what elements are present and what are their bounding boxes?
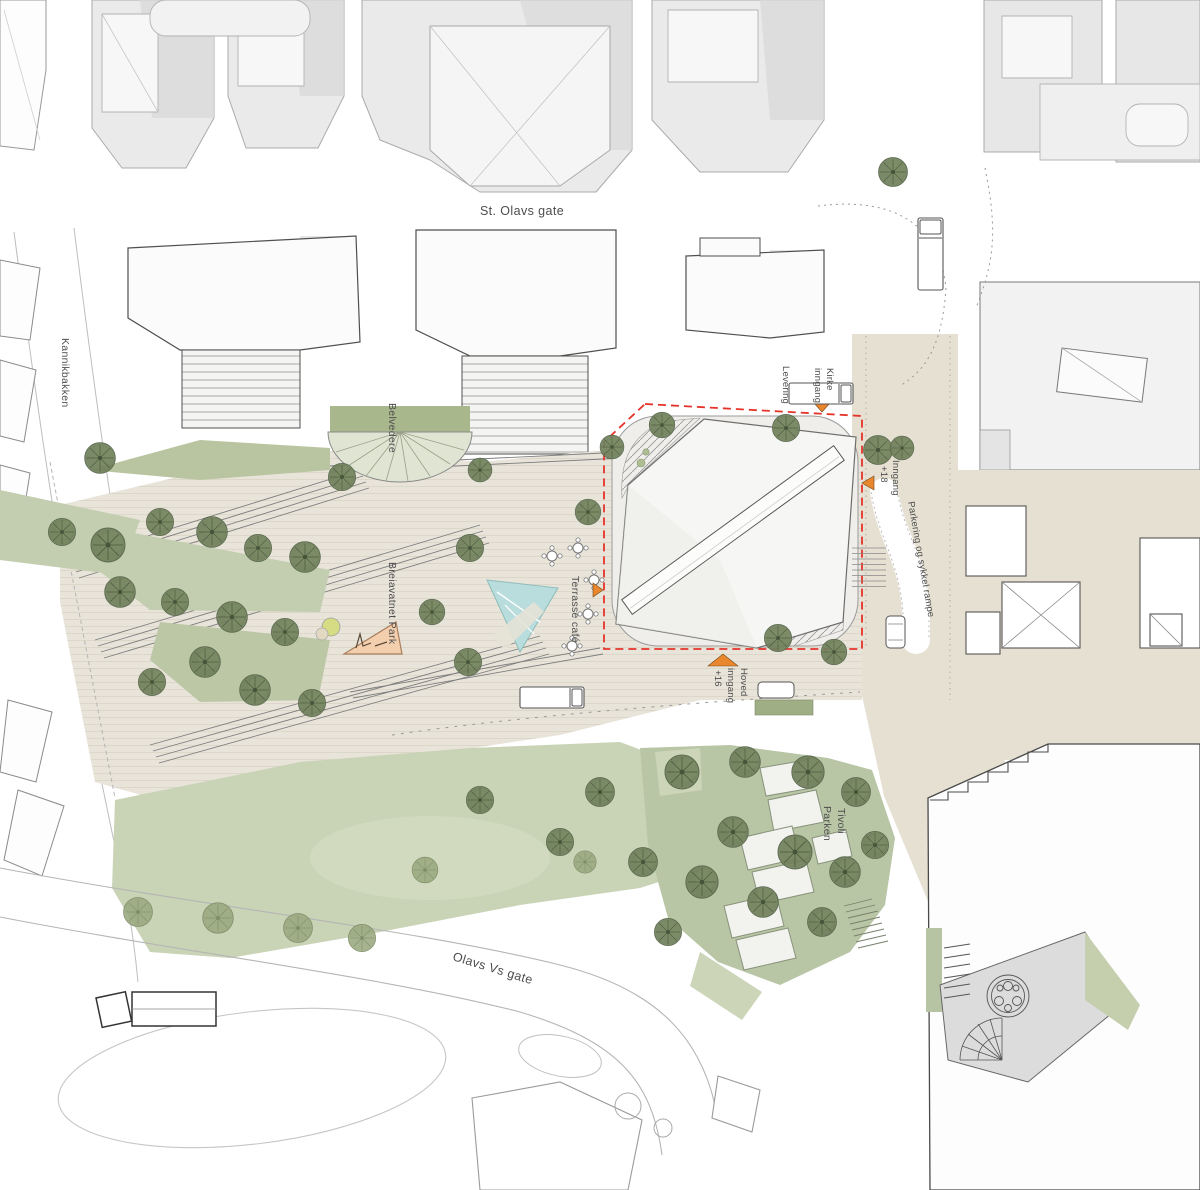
- label-tivoli-parken-1: Tivoli: [835, 808, 847, 834]
- tree-icon: [842, 778, 871, 807]
- tree-icon: [808, 908, 837, 937]
- label-breiavatnet-park: Breiavatnet Park: [386, 562, 398, 645]
- site-plan-page: St. Olavs gate Kannikbakken Belvedere Br…: [0, 0, 1200, 1190]
- tree-icon: [85, 443, 116, 474]
- tree-icon: [730, 747, 761, 778]
- tree-icon: [546, 828, 573, 855]
- label-levering: Levering: [780, 366, 791, 404]
- context-building-right: [980, 282, 1200, 470]
- tree-icon: [91, 528, 125, 562]
- tree-icon: [298, 689, 325, 716]
- tree-icon: [290, 542, 321, 573]
- tree-icon: [456, 534, 483, 561]
- tree-icon: [686, 866, 718, 898]
- label-belvedere: Belvedere: [386, 403, 398, 453]
- tree-icon: [217, 602, 248, 633]
- tree-icon: [244, 534, 271, 561]
- tree-icon: [197, 517, 228, 548]
- tree-icon: [649, 412, 675, 438]
- site-plan-map: St. Olavs gate Kannikbakken Belvedere Br…: [0, 0, 1200, 1190]
- label-tivoli-parken-2: Parken: [821, 806, 833, 841]
- tree-icon: [161, 588, 188, 615]
- truck-icon: [520, 687, 584, 708]
- tree-icon: [574, 851, 596, 873]
- tree-icon: [466, 786, 493, 813]
- tree-icon: [890, 436, 914, 460]
- tree-icon: [864, 436, 893, 465]
- tree-icon: [468, 458, 492, 482]
- label-terrasse-cafe: Terrasse café: [569, 576, 581, 643]
- tree-icon: [348, 924, 375, 951]
- tree-icon: [600, 435, 624, 459]
- tree-icon: [879, 158, 908, 187]
- tree-icon: [861, 831, 888, 858]
- tree-icon: [778, 835, 812, 869]
- label-inngang-18-2: +18: [878, 466, 889, 483]
- tree-icon: [240, 675, 271, 706]
- tree-icon: [284, 914, 313, 943]
- tree-icon: [792, 756, 824, 788]
- tree-icon: [271, 618, 298, 645]
- tree-icon: [821, 639, 847, 665]
- tree-icon: [138, 668, 165, 695]
- tree-icon: [575, 499, 601, 525]
- tree-icon: [419, 599, 445, 625]
- tree-icon: [718, 817, 749, 848]
- building-bottom-right: [926, 744, 1200, 1190]
- tree-icon: [772, 414, 799, 441]
- label-kirke-inngang-2: inngang: [812, 368, 823, 403]
- tree-icon: [586, 778, 615, 807]
- truck-icon: [918, 218, 943, 290]
- hedge: [755, 700, 813, 715]
- tree-icon: [146, 508, 173, 535]
- kiosk-structure: [96, 992, 132, 1028]
- tree-icon: [105, 577, 136, 608]
- tree-icon: [454, 648, 481, 675]
- tree-icon: [654, 918, 681, 945]
- tree-icon: [412, 857, 438, 883]
- label-kannikbakken: Kannikbakken: [59, 338, 71, 408]
- car-icon: [886, 616, 905, 648]
- tree-icon: [629, 848, 658, 877]
- tree-icon: [830, 857, 861, 888]
- label-inngang-18-1: Inngang: [890, 460, 901, 496]
- label-hoved-inngang-3: +16: [712, 670, 723, 687]
- tree-icon: [748, 887, 779, 918]
- tree-icon: [48, 518, 75, 545]
- tree-icon: [203, 903, 233, 933]
- label-st-olavs-gate: St. Olavs gate: [480, 204, 564, 218]
- tree-icon: [124, 898, 153, 927]
- tree-icon: [190, 647, 221, 678]
- label-hoved-inngang-1: Hoved: [738, 668, 749, 696]
- label-kirke-inngang-1: Kirke: [824, 368, 835, 391]
- tree-icon: [328, 463, 355, 490]
- tree-icon: [665, 755, 699, 789]
- car-icon: [758, 682, 794, 698]
- label-hoved-inngang-2: inngang: [725, 668, 736, 703]
- tree-icon: [764, 624, 791, 651]
